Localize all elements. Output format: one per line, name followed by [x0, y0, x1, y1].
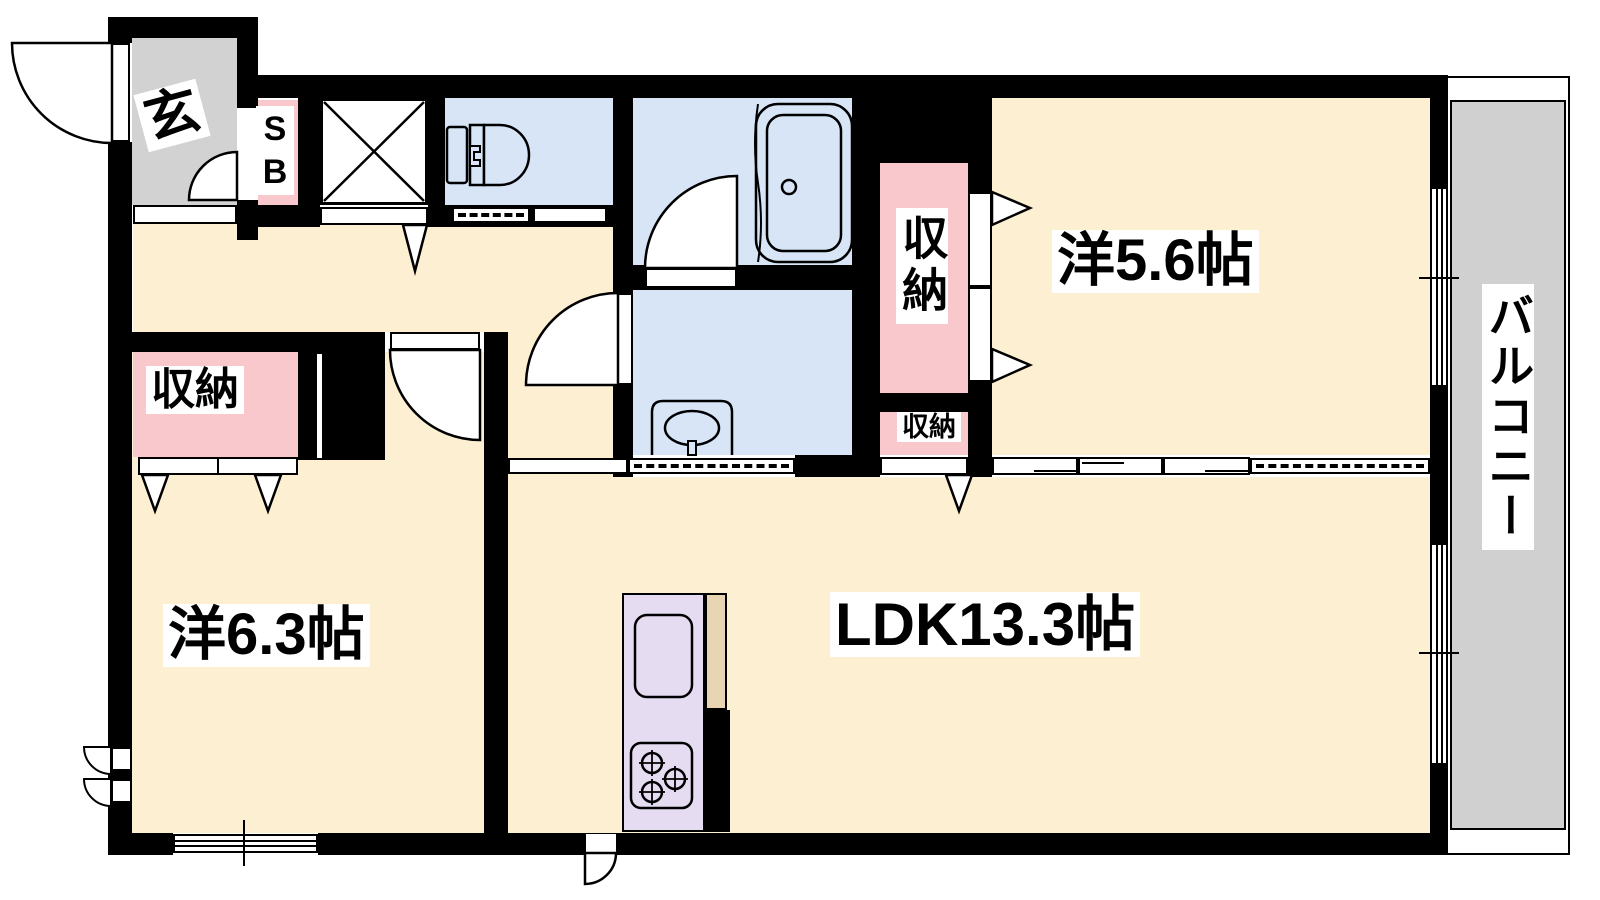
toilet-icon — [447, 125, 529, 185]
stove-icon — [631, 743, 692, 808]
bathtub-icon — [755, 104, 852, 262]
folding-marker — [403, 225, 427, 271]
floor-plan: 玄 SB 収納 収納 収納 洋5.6帖 洋6.3帖 LDK13.3帖 バルコニー — [0, 0, 1600, 900]
western-room-56-label: 洋5.6帖 — [1052, 230, 1259, 293]
folding-marker — [142, 475, 168, 511]
kitchen-sink-icon — [635, 615, 692, 697]
folding-marker — [992, 192, 1030, 225]
western63-door-arc — [390, 350, 480, 440]
storage-right-small-label: 収納 — [897, 412, 961, 442]
folding-marker — [992, 349, 1030, 382]
shoe-box-label: SB — [256, 106, 294, 195]
sink-icon — [652, 401, 732, 455]
kitchen-rear-door-arc — [585, 853, 616, 884]
fan-window-arc-1 — [84, 747, 111, 774]
entrance-inner-door-arc — [189, 152, 237, 200]
bath-door-arc — [645, 176, 737, 268]
storage-right-tall-label: 収納 — [896, 208, 948, 324]
western-room-63-label: 洋6.3帖 — [163, 604, 370, 667]
fan-window-arc-2 — [84, 779, 111, 806]
fixtures-overlay — [0, 0, 1600, 900]
folding-marker — [255, 475, 281, 511]
pipe-space-x-icon — [324, 102, 424, 201]
balcony-label: バルコニー — [1482, 284, 1534, 550]
storage-left-label: 収納 — [146, 366, 244, 414]
entrance-door-arc — [12, 43, 112, 143]
folding-marker — [946, 475, 972, 511]
washroom-door-arc — [526, 293, 618, 385]
ldk-label: LDK13.3帖 — [830, 592, 1140, 657]
